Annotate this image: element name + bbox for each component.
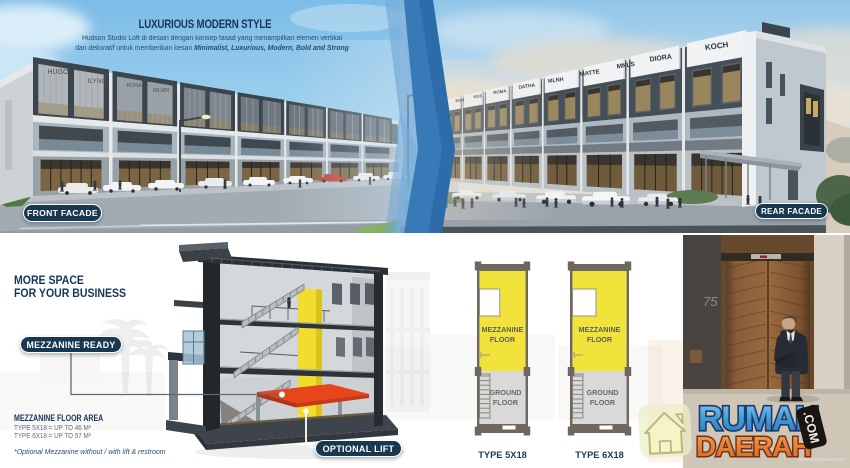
svg-text:MEZZANINE: MEZZANINE: [482, 325, 524, 334]
svg-text:FLOOR: FLOOR: [587, 335, 613, 344]
svg-text:FLOOR: FLOOR: [493, 398, 519, 407]
svg-text:GROUND: GROUND: [587, 388, 619, 397]
svg-text:DAERAH: DAERAH: [696, 431, 811, 462]
svg-text:GROUND: GROUND: [490, 388, 522, 397]
svg-text:75: 75: [703, 294, 718, 309]
svg-text:FLOOR: FLOOR: [490, 335, 516, 344]
svg-text:MEZZANINE: MEZZANINE: [579, 325, 621, 334]
svg-text:FLOOR: FLOOR: [590, 398, 616, 407]
svg-text:TYPE 6X18: TYPE 6X18: [575, 450, 624, 460]
svg-text:RUMAHDAERAH.COM: RUMAHDAERAH.COM: [798, 457, 845, 462]
svg-text:TYPE 5X18: TYPE 5X18: [478, 450, 527, 460]
